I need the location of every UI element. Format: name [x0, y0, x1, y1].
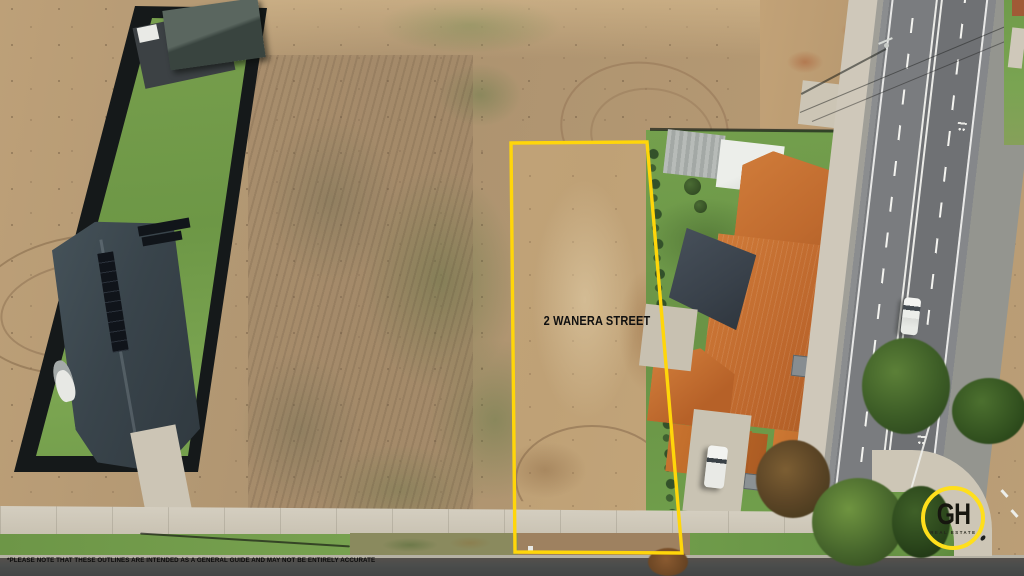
- logo-initials: GH: [936, 502, 970, 528]
- lot-outline: [0, 0, 1024, 576]
- gh-real-estate-logo: GH REAL ESTATE: [921, 486, 985, 550]
- disclaimer-text: *PLEASE NOTE THAT THESE OUTLINES ARE INT…: [7, 557, 375, 564]
- logo-subtitle: REAL ESTATE: [930, 530, 976, 535]
- property-address-label: 2 WANERA STREET: [522, 314, 672, 328]
- aerial-photo: 2 WANERA STREET *PLEASE NOTE THAT THESE …: [0, 0, 1024, 576]
